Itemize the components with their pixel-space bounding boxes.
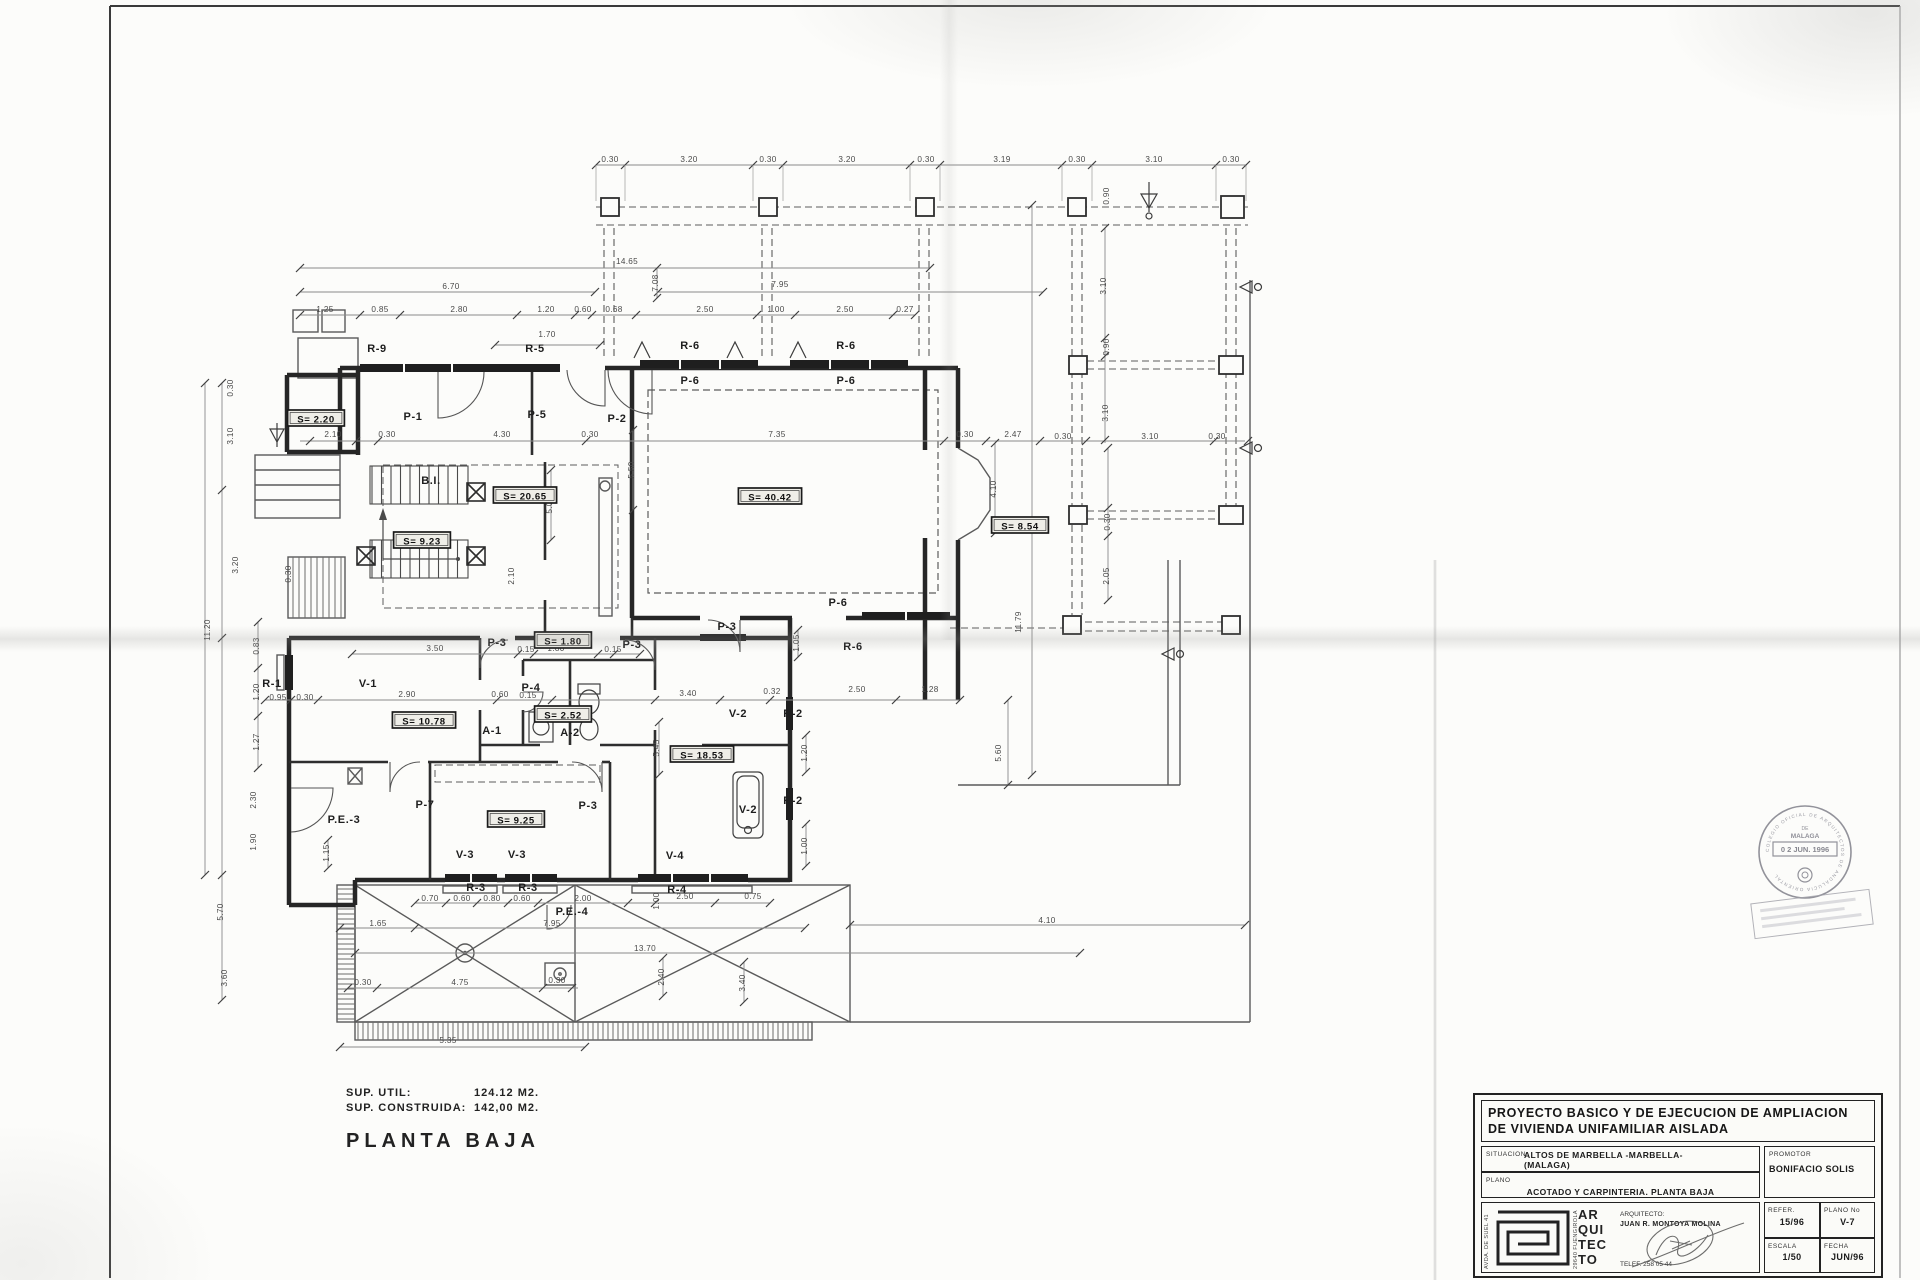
refer-label: REFER.	[1768, 1207, 1795, 1214]
dimension-label: 7.95	[771, 280, 788, 289]
dimension-label: 7.35	[768, 430, 785, 439]
fecha-value: JUN/96	[1824, 1252, 1871, 1262]
thin-outlines	[255, 280, 1250, 1040]
opening-label: P.E.-3	[328, 814, 361, 826]
room-area-label: S= 2.20	[288, 410, 345, 426]
window-axis-mark	[790, 342, 806, 358]
room-area-label: S= 2.52	[535, 706, 592, 722]
sup-util-value: 124.12 M2.	[474, 1086, 539, 1101]
opening-label: R-3	[518, 882, 538, 894]
opening-label: V-1	[359, 678, 377, 690]
dimension-label: 0.15	[604, 645, 621, 654]
opening-label: P-3	[718, 621, 737, 633]
dimension-label: 4.10	[1038, 916, 1055, 925]
opening-label: R-1	[262, 678, 282, 690]
dimension-label: 2.50	[696, 305, 713, 314]
opening-label: P-6	[837, 375, 856, 387]
opening-label: P-2	[608, 413, 627, 425]
svg-text:S= 20.65: S= 20.65	[503, 492, 547, 503]
opening-label: R-9	[367, 343, 387, 355]
dimension-label: 0.90	[1102, 338, 1111, 355]
dimension-label: 2.50	[676, 892, 693, 901]
opening-label: P-3	[488, 637, 507, 649]
opening-label: V-2	[739, 804, 757, 816]
dimension-label: 0.15	[519, 691, 536, 700]
svg-text:S= 2.20: S= 2.20	[297, 415, 335, 426]
escala-label: ESCALA	[1768, 1243, 1797, 1250]
dimension-label: 0.27	[896, 305, 913, 314]
dimension-label: 0.32	[763, 687, 780, 696]
dimension-label: 5.45	[652, 739, 661, 756]
opening-label: V-3	[508, 849, 526, 861]
fecha-label: FECHA	[1824, 1243, 1849, 1250]
dimension-label: 5.50	[627, 461, 636, 478]
dimension-label: 7.08	[651, 274, 660, 291]
room-area-label: S= 20.65	[493, 487, 556, 503]
opening-label: P-7	[416, 799, 435, 811]
dimension-label: 14.65	[616, 257, 638, 266]
dimension-label: 11.79	[1014, 611, 1023, 633]
dimension-label: 0.30	[548, 976, 565, 985]
dimension-label: 5.60	[994, 744, 1003, 761]
opening-label: P.E.-4	[556, 906, 589, 918]
dimension-label: 0.30	[226, 379, 235, 396]
opening-label: P-3	[623, 639, 642, 651]
dimension-label: 0.30	[378, 430, 395, 439]
dimension-label: 2.50	[836, 305, 853, 314]
plano-label: PLANO	[1486, 1177, 1511, 1184]
plano-cell: PLANO ACOTADO Y CARPINTERIA. PLANTA BAJA	[1481, 1172, 1760, 1198]
dimension-label: 3.10	[1145, 155, 1162, 164]
dimension-label: 1.15	[322, 844, 331, 861]
dimension-label: 2.40	[657, 968, 666, 985]
dimension-label: 3.10	[1141, 432, 1158, 441]
dimension-lines	[201, 161, 1252, 1051]
stamp-date-value: 0 2 JUN. 1996	[1781, 845, 1829, 854]
level-flag-icon	[1141, 182, 1157, 219]
title-block: PROYECTO BASICO Y DE EJECUCION DE AMPLIA…	[1473, 1093, 1883, 1278]
escala-value: 1/50	[1768, 1252, 1816, 1262]
opening-label: B.I.	[421, 475, 441, 487]
dimension-label: 11.20	[203, 619, 212, 641]
stamp-de: DE	[1802, 826, 1810, 832]
dimension-label: 2.05	[1102, 567, 1111, 584]
arquitecto-logo-text: AR QUI TEC TO	[1578, 1207, 1607, 1267]
dimension-label: 2.90	[398, 690, 415, 699]
dimension-label: 0.30	[917, 155, 934, 164]
project-title: PROYECTO BASICO Y DE EJECUCION DE AMPLIA…	[1481, 1100, 1875, 1142]
toilet-tank	[578, 684, 600, 694]
dimension-label: 0.30	[284, 565, 293, 582]
dimension-label: 1.27	[252, 733, 261, 750]
sup-construida-value: 142,00 M2.	[474, 1101, 539, 1116]
dimension-label: 0.90	[1102, 187, 1111, 204]
opening-label: R-2	[783, 708, 803, 720]
dimension-label: 3.10	[1099, 277, 1108, 294]
dimension-label: 5.35	[439, 1036, 456, 1045]
svg-text:S= 40.42: S= 40.42	[748, 493, 791, 504]
room-area-label: S= 18.53	[670, 746, 733, 762]
dimension-label: 1.25	[316, 305, 333, 314]
staircase	[370, 466, 468, 578]
dimension-label: 0.30	[581, 430, 598, 439]
dimension-label: 13.70	[634, 944, 656, 953]
dimension-label: 2.50	[848, 685, 865, 694]
plano-no-value: V-7	[1824, 1217, 1871, 1227]
reference-grid: REFER. 15/96 PLANO No V-7 ESCALA 1/50 FE…	[1764, 1202, 1875, 1273]
dimension-label: 0.60	[513, 894, 530, 903]
walls-interior	[289, 368, 790, 880]
sup-util-label: SUP. UTIL:	[346, 1086, 474, 1101]
dimension-label: 0.60	[453, 894, 470, 903]
opening-label: R-3	[466, 882, 486, 894]
dimension-label: 1.28	[921, 685, 938, 694]
architect-cell: AVDA. DE SUEL 41 29640 FUENGIROLA AR QUI…	[1481, 1202, 1760, 1273]
dimension-label: 3.19	[993, 155, 1010, 164]
plano-no-label: PLANO No	[1824, 1207, 1860, 1214]
dimension-label: 4.75	[451, 978, 468, 987]
opening-label: V-4	[666, 850, 685, 862]
dimension-label: 1.05	[792, 634, 801, 651]
svg-text:S= 1.80: S= 1.80	[544, 637, 582, 648]
dimension-label: 0.30	[1054, 432, 1071, 441]
dimension-label: 2.30	[249, 791, 258, 808]
opening-label: P-6	[829, 597, 848, 609]
dimension-label: 2.10	[324, 430, 341, 439]
dimension-label: 1.20	[252, 683, 261, 700]
dimension-label: 0.30	[1103, 513, 1112, 530]
dimension-label: 0.30	[1068, 155, 1085, 164]
opening-label: R-6	[836, 340, 856, 352]
dimension-label: 6.70	[442, 282, 459, 291]
dimension-label: 4.10	[989, 480, 998, 497]
room-area-label: S= 9.25	[488, 811, 545, 827]
opening-label: R-2	[783, 795, 803, 807]
dimension-label: 3.20	[838, 155, 855, 164]
dimension-label: 2.80	[450, 305, 467, 314]
dimension-label: 0.30	[759, 155, 776, 164]
dimension-label: 3.20	[680, 155, 697, 164]
situacion-label: SITUACION	[1486, 1151, 1526, 1158]
dimension-label: 0.60	[491, 690, 508, 699]
opening-label: V-2	[729, 708, 747, 720]
axis-marker-icon	[1240, 281, 1262, 293]
pergola-columns	[601, 196, 1244, 634]
svg-text:S= 9.25: S= 9.25	[497, 816, 535, 827]
level-flag-icon	[270, 423, 284, 447]
dimension-label: 0.30	[1208, 432, 1225, 441]
room-area-label: S= 9.23	[394, 532, 451, 548]
dimension-label: 0.85	[371, 305, 388, 314]
text-labels: R-9R-5P-1P-5P-2R-6R-6P-6P-6P-6P-3R-6B.I.…	[203, 155, 1240, 1045]
situacion-cell: SITUACION ALTOS DE MARBELLA -MARBELLA- (…	[1481, 1146, 1760, 1172]
scanned-floorplan-sheet: { "footer": { "sup_util_label": "SUP. UT…	[0, 0, 1920, 1280]
svg-text:S= 2.52: S= 2.52	[544, 711, 582, 722]
walls-exterior	[287, 368, 958, 905]
plan-title: PLANTA BAJA	[346, 1130, 540, 1153]
refer-value: 15/96	[1768, 1217, 1816, 1227]
dimension-label: 0.15	[517, 645, 534, 654]
dimension-label: 0.30	[956, 430, 973, 439]
dimension-label: 5.70	[216, 903, 225, 920]
opening-label: P-6	[681, 375, 700, 387]
dimension-label: 0.80	[483, 894, 500, 903]
opening-label: P-3	[579, 800, 598, 812]
opening-label: A-2	[560, 727, 580, 739]
architect-logo-icon	[1494, 1208, 1572, 1268]
dimension-label: 3.50	[426, 644, 443, 653]
opening-label: P-1	[404, 411, 423, 423]
dimension-label: 1.00	[767, 305, 784, 314]
axis-marker-icon	[1240, 442, 1262, 454]
dimension-label: 1.20	[537, 305, 554, 314]
dimension-label: 3.40	[679, 689, 696, 698]
opening-label: R-5	[525, 343, 545, 355]
dimension-label: 1.65	[369, 919, 386, 928]
dimension-label: 2.10	[507, 567, 516, 584]
dimension-label: 1.00	[800, 837, 809, 854]
room-area-label: S= 8.54	[992, 517, 1049, 533]
opening-label: R-6	[843, 641, 863, 653]
stair-columns	[357, 483, 485, 565]
sup-construida-label: SUP. CONSTRUIDA:	[346, 1101, 474, 1116]
dimension-label: 3.10	[1101, 404, 1110, 421]
dimension-label: 7.95	[543, 919, 560, 928]
dimension-label: 0.60	[574, 305, 591, 314]
opening-label: A-1	[482, 725, 502, 737]
dimension-label: 2.00	[574, 894, 591, 903]
dimension-label: 0.95	[269, 693, 286, 702]
dimension-label: 1.70	[538, 330, 555, 339]
dimension-label: 1.90	[249, 833, 258, 850]
room-area-label: S= 1.80	[535, 632, 592, 648]
dimension-label: 0.30	[296, 693, 313, 702]
dimension-label: 0.30	[354, 978, 371, 987]
stamp-city: MALAGA	[1791, 833, 1820, 840]
dimension-label: 0.68	[605, 305, 622, 314]
promotor-cell: PROMOTOR BONIFACIO SOLIS	[1764, 1146, 1875, 1198]
address-left: AVDA. DE SUEL 41	[1484, 1207, 1490, 1269]
opening-label: R-6	[680, 340, 700, 352]
dimension-label: 0.30	[601, 155, 618, 164]
dimension-label: 4.30	[493, 430, 510, 439]
dimension-label: 3.20	[231, 556, 240, 573]
window-axis-mark	[634, 342, 650, 358]
dimension-label: 2.47	[1004, 430, 1021, 439]
dimension-label: 3.10	[226, 427, 235, 444]
dimension-label: 3.60	[220, 969, 229, 986]
room-area-label: S= 40.42	[738, 488, 801, 504]
svg-text:S= 9.23: S= 9.23	[403, 537, 441, 548]
opening-label: V-3	[456, 849, 474, 861]
dimension-label: 0.75	[744, 892, 761, 901]
svg-text:S= 8.54: S= 8.54	[1001, 522, 1039, 533]
svg-text:S= 18.53: S= 18.53	[680, 751, 723, 762]
svg-text:S= 10.78: S= 10.78	[402, 717, 446, 728]
opening-label: P-5	[528, 409, 547, 421]
dimension-label: 1.00	[652, 892, 661, 909]
window-axis-mark	[727, 342, 743, 358]
dimension-label: 0.30	[1222, 155, 1239, 164]
surface-summary: SUP. UTIL: 124.12 M2. SUP. CONSTRUIDA: 1…	[346, 1086, 540, 1153]
dimension-label: 3.40	[738, 974, 747, 991]
room-area-label: S= 10.78	[392, 712, 455, 728]
dimension-label: 1.20	[800, 744, 809, 761]
floorplan-drawing: R-9R-5P-1P-5P-2R-6R-6P-6P-6P-6P-3R-6B.I.…	[0, 0, 1920, 1280]
signature	[1612, 1205, 1752, 1271]
dimension-label: 0.70	[421, 894, 438, 903]
promotor-label: PROMOTOR	[1769, 1151, 1811, 1158]
dimension-label: 0.83	[252, 637, 261, 654]
